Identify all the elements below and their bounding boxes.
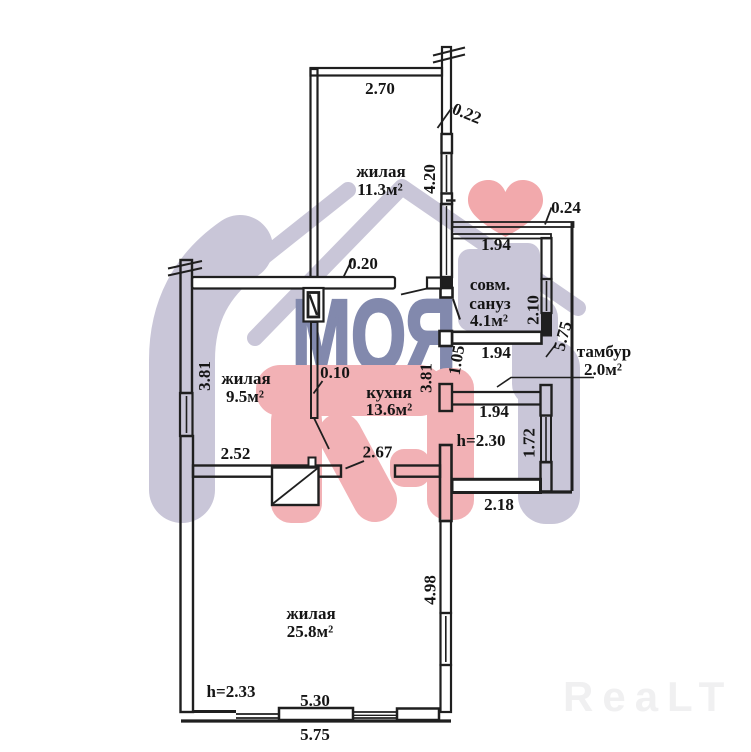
svg-text:h=2.30: h=2.30	[457, 431, 506, 450]
svg-text:совм.: совм.	[470, 275, 510, 294]
svg-text:4.20: 4.20	[420, 164, 439, 194]
svg-text:1.94: 1.94	[481, 235, 511, 254]
svg-text:ReaLT: ReaLT	[563, 673, 733, 720]
svg-text:4.1м²: 4.1м²	[470, 311, 508, 330]
svg-text:жилая: жилая	[221, 369, 270, 388]
svg-text:1.94: 1.94	[481, 343, 511, 362]
svg-text:h=2.33: h=2.33	[207, 682, 256, 701]
svg-text:2.70: 2.70	[365, 79, 395, 98]
svg-text:3.81: 3.81	[195, 361, 214, 391]
svg-text:2.10: 2.10	[524, 295, 543, 325]
svg-text:2.18: 2.18	[484, 495, 514, 514]
svg-text:2.52: 2.52	[221, 444, 251, 463]
svg-text:тамбур: тамбур	[577, 342, 631, 361]
svg-text:2.67: 2.67	[363, 443, 393, 462]
svg-text:2.0м²: 2.0м²	[584, 360, 622, 379]
svg-text:0.10: 0.10	[320, 363, 350, 382]
svg-text:3.81: 3.81	[417, 363, 436, 393]
svg-text:25.8м²: 25.8м²	[287, 622, 333, 641]
svg-text:11.3м²: 11.3м²	[357, 180, 403, 199]
svg-text:5.75: 5.75	[300, 725, 330, 744]
svg-text:1.72: 1.72	[520, 428, 539, 458]
svg-text:0.24: 0.24	[551, 198, 581, 217]
svg-text:1.94: 1.94	[479, 402, 509, 421]
svg-text:9.5м²: 9.5м²	[226, 387, 264, 406]
svg-text:4.98: 4.98	[421, 575, 440, 605]
svg-text:13.6м²: 13.6м²	[366, 400, 412, 419]
svg-text:жилая: жилая	[286, 604, 335, 623]
svg-text:0.20: 0.20	[348, 254, 378, 273]
svg-text:жилая: жилая	[356, 162, 405, 181]
svg-text:5.30: 5.30	[300, 691, 330, 710]
